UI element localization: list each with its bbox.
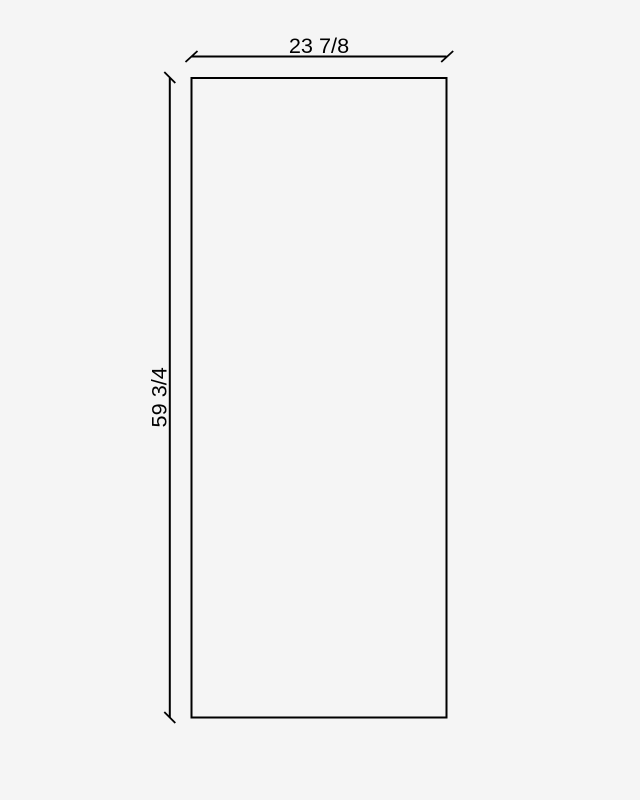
svg-text:23 7/8: 23 7/8	[289, 33, 349, 58]
svg-text:59 3/4: 59 3/4	[147, 367, 172, 427]
